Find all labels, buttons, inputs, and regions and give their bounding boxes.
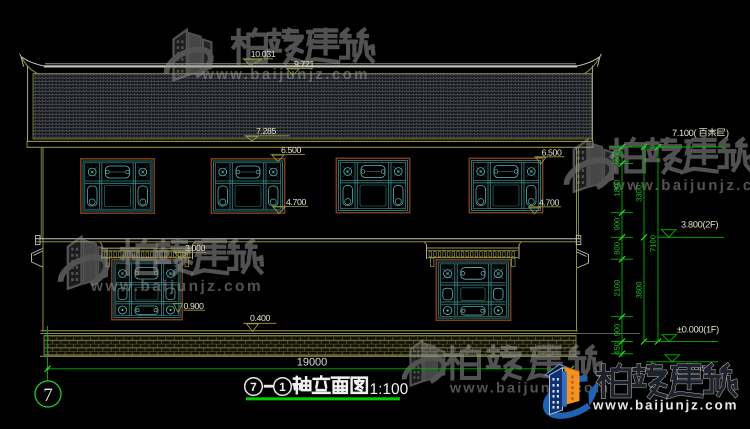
svg-text:3800: 3800 — [635, 282, 644, 299]
svg-text:4.700: 4.700 — [286, 197, 307, 207]
svg-text:3.000: 3.000 — [185, 243, 206, 253]
svg-text:6.500: 6.500 — [541, 148, 562, 158]
svg-text:3.800(2F): 3.800(2F) — [681, 220, 718, 230]
svg-text:900: 900 — [613, 324, 622, 337]
svg-text:±0.000(1F): ±0.000(1F) — [677, 325, 719, 335]
svg-text:www.baijunjz.com: www.baijunjz.com — [449, 381, 610, 397]
svg-text:900: 900 — [613, 218, 622, 231]
svg-text:800: 800 — [613, 242, 622, 255]
svg-text:6.500: 6.500 — [281, 145, 302, 155]
svg-text:7: 7 — [43, 385, 53, 406]
svg-text:2100: 2100 — [613, 280, 622, 297]
svg-text:7100: 7100 — [649, 235, 658, 252]
svg-text:4.700: 4.700 — [539, 198, 560, 208]
svg-text:7.100(: 7.100( — [672, 128, 696, 138]
svg-text:1800: 1800 — [613, 180, 622, 197]
svg-text:600: 600 — [613, 150, 622, 163]
svg-text:www.baijunjz.com: www.baijunjz.com — [201, 66, 370, 83]
svg-text:7.285: 7.285 — [256, 126, 277, 136]
svg-text:0.900: 0.900 — [183, 301, 204, 311]
svg-text:450: 450 — [613, 342, 622, 355]
svg-text:): ) — [726, 128, 729, 138]
svg-text:7: 7 — [250, 380, 257, 394]
svg-text:3300: 3300 — [635, 185, 644, 202]
svg-text:1:100: 1:100 — [370, 381, 409, 398]
svg-text:www.baijunjz.com: www.baijunjz.com — [612, 177, 750, 194]
svg-text:10.031: 10.031 — [251, 49, 276, 59]
svg-text:www.baijunjz.com: www.baijunjz.com — [592, 398, 738, 413]
svg-text:www.baijunjz.com: www.baijunjz.com — [90, 278, 263, 295]
svg-text:1: 1 — [279, 380, 286, 394]
svg-text:19000: 19000 — [297, 357, 328, 369]
svg-text:9.721: 9.721 — [294, 59, 315, 69]
svg-text:0.400: 0.400 — [250, 313, 271, 323]
